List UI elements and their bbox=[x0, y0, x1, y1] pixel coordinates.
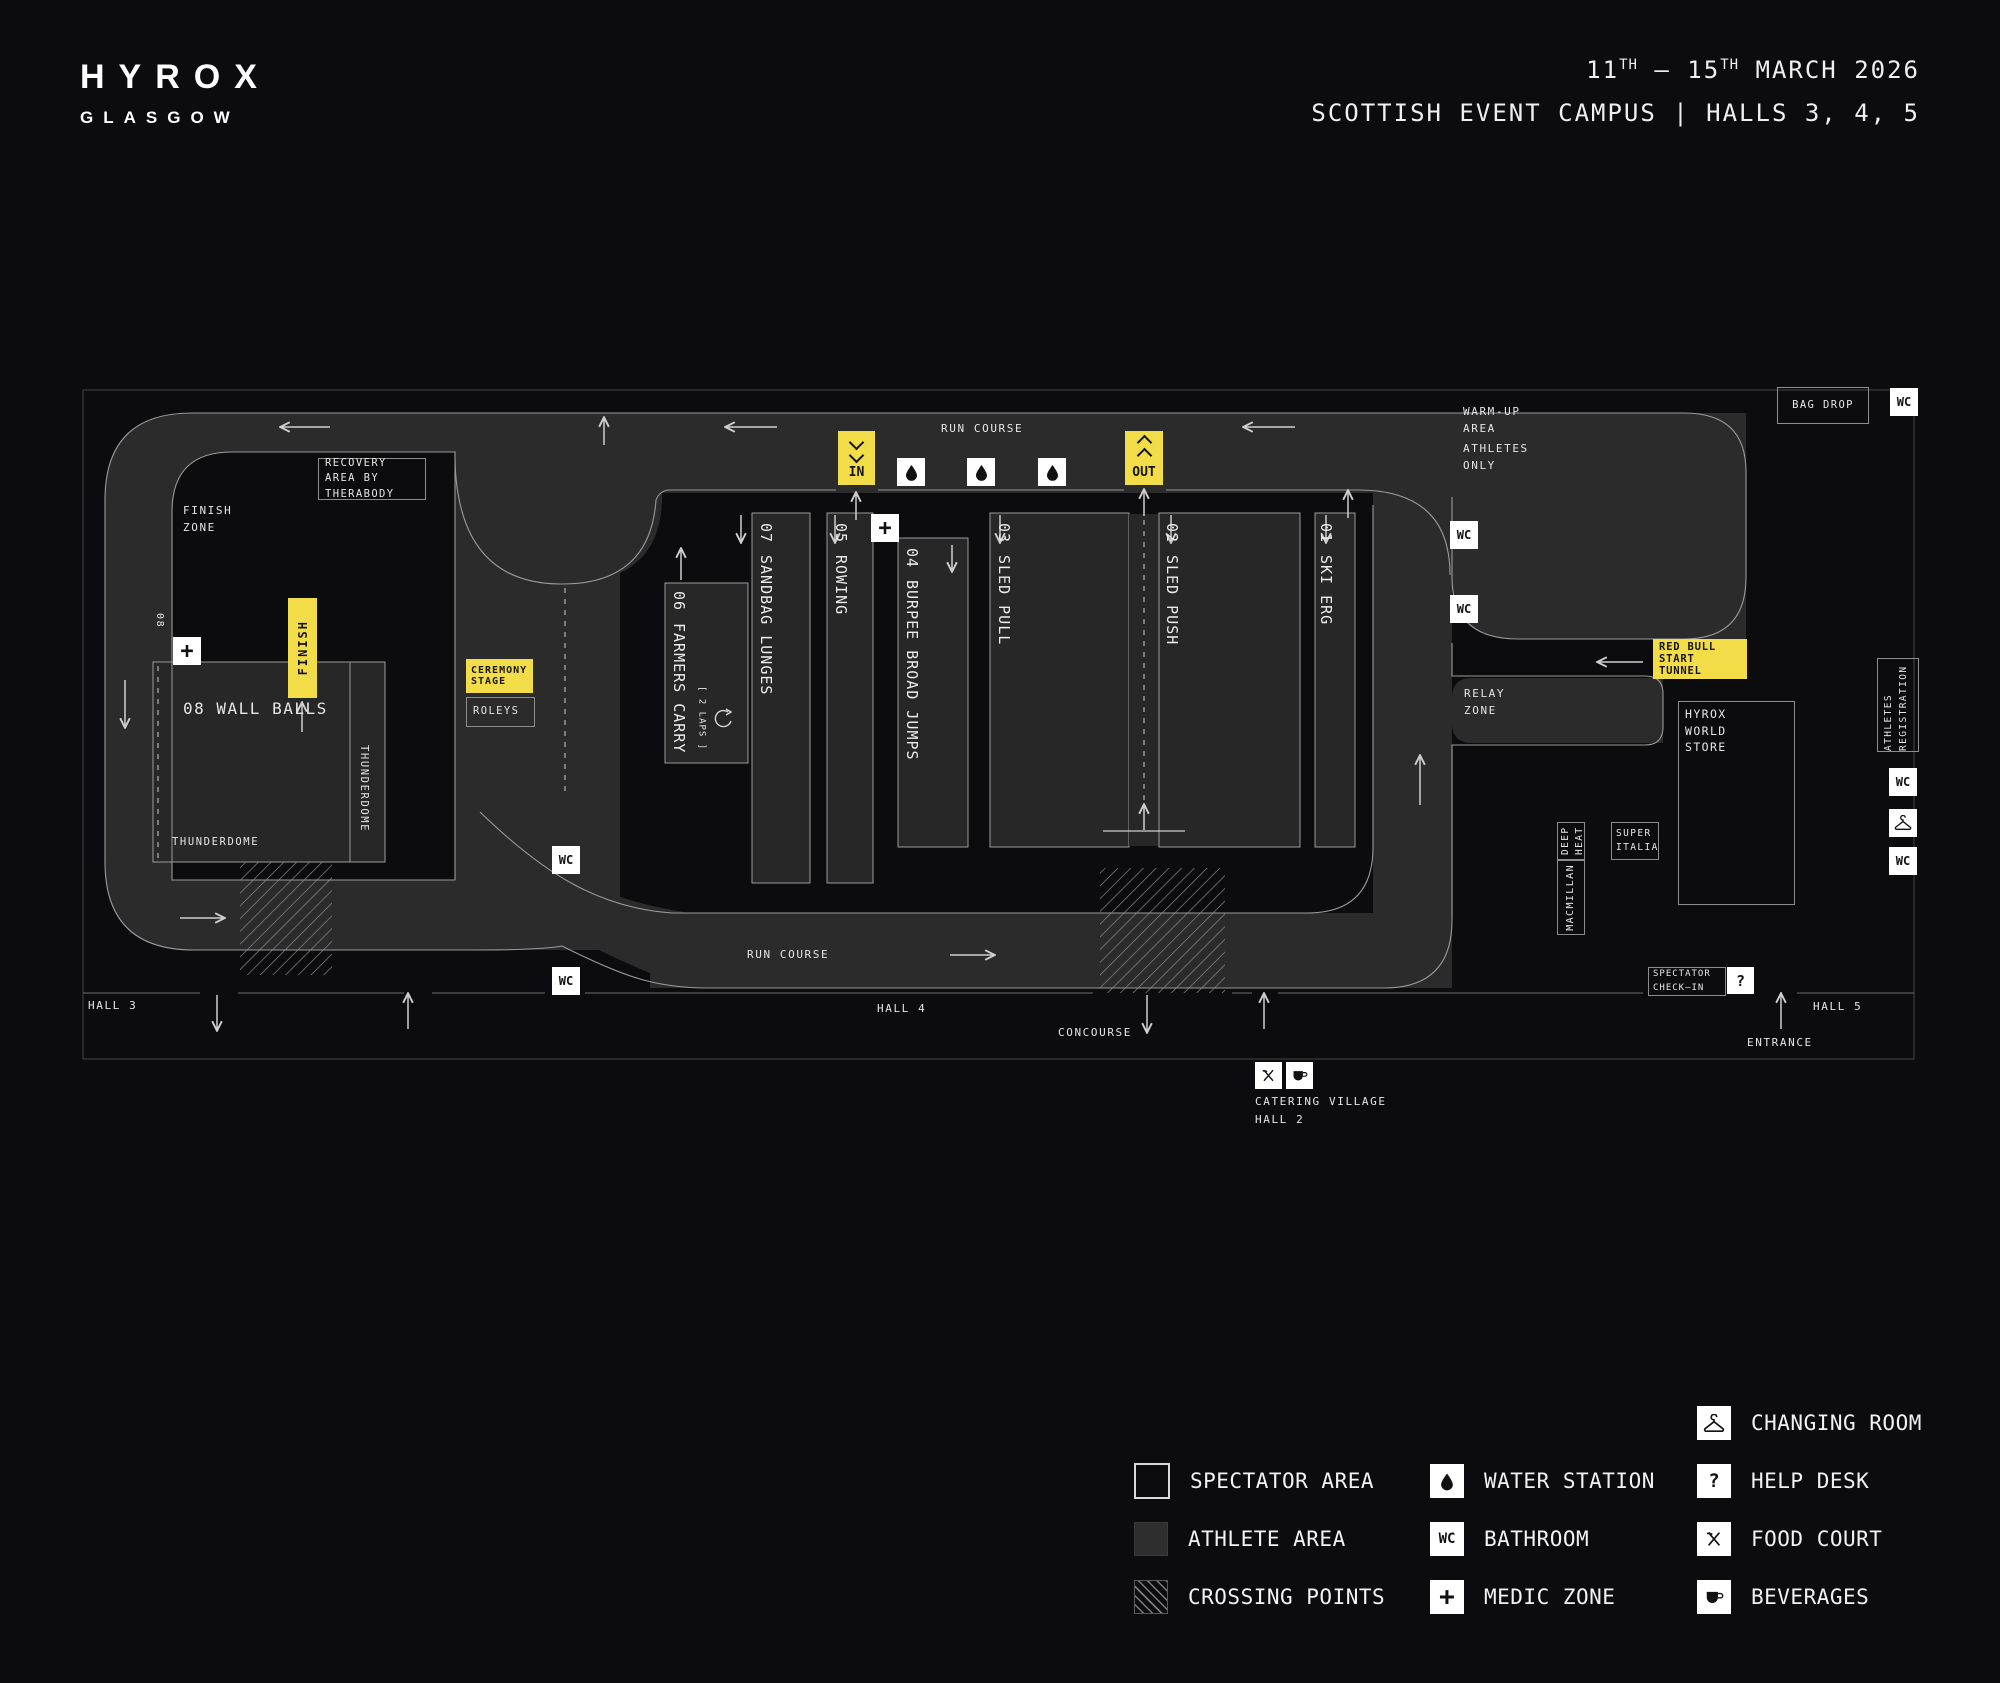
station-label-farmers-carry: 06FARMERS CARRY bbox=[670, 591, 688, 753]
entrance-label: ENTRANCE bbox=[1747, 1035, 1813, 1052]
event-map-page: HYROX GLASGOW 11TH — 15TH MARCH 2026 SCO… bbox=[0, 0, 2000, 1683]
station-label-rowing: 05ROWING bbox=[832, 523, 850, 615]
hyrox-world-store-box: HYROX WORLD STORE bbox=[1678, 701, 1795, 905]
red-bull-start-tunnel-box: RED BULL START TUNNEL bbox=[1653, 639, 1747, 679]
changing-room-icon bbox=[1889, 809, 1917, 837]
thunderdome-label-bottom: THUNDERDOME bbox=[172, 835, 259, 851]
finish-banner: FINISH bbox=[288, 598, 317, 698]
station-label-sled-pull: 03SLED PULL bbox=[995, 523, 1013, 645]
recovery-area-box: RECOVERY AREA BY THERABODY bbox=[318, 458, 426, 500]
bathroom-icon: WC bbox=[1430, 1522, 1464, 1556]
athletes-only-label: ATHLETES ONLY bbox=[1463, 441, 1533, 474]
medic-zone-icon: + bbox=[173, 637, 201, 665]
hall5-label: HALL 5 bbox=[1813, 999, 1862, 1016]
legend-help-desk: ? HELP DESK bbox=[1697, 1464, 1869, 1498]
roleys-box: ROLEYS bbox=[466, 697, 535, 727]
hall3-label: HALL 3 bbox=[88, 998, 137, 1015]
legend-crossing-points: CROSSING POINTS bbox=[1134, 1580, 1385, 1614]
bathroom-icon: WC bbox=[1889, 768, 1917, 796]
crossing-points-swatch bbox=[1134, 1580, 1168, 1614]
chevron-up-icon bbox=[1136, 448, 1152, 464]
legend-spectator-area: SPECTATOR AREA bbox=[1134, 1464, 1374, 1498]
bag-drop-box: BAG DROP bbox=[1777, 387, 1869, 424]
water-station-icon bbox=[897, 458, 925, 486]
bathroom-icon: WC bbox=[552, 967, 580, 995]
spectator-checkin-box: SPECTATOR CHECK—IN bbox=[1648, 967, 1726, 996]
bathroom-icon: WC bbox=[1890, 388, 1918, 416]
station-label-sled-push: 02SLED PUSH bbox=[1163, 523, 1181, 645]
medic-zone-icon: + bbox=[871, 514, 899, 542]
course-gate-out: OUT bbox=[1125, 431, 1163, 485]
water-station-icon bbox=[1430, 1464, 1464, 1498]
finish-zone-label: FINISH ZONE bbox=[183, 503, 245, 536]
bathroom-icon: WC bbox=[1889, 847, 1917, 875]
beverages-icon bbox=[1286, 1062, 1313, 1089]
macmillan-box: MACMILLAN bbox=[1557, 860, 1585, 935]
station-label-burpee-broad-jumps: 04BURPEE BROAD JUMPS bbox=[903, 548, 921, 761]
run-course-label-top: RUN COURSE bbox=[941, 421, 1023, 438]
cup-icon bbox=[1292, 1069, 1308, 1082]
water-drop-icon bbox=[974, 464, 989, 481]
legend-beverages: BEVERAGES bbox=[1697, 1580, 1869, 1614]
food-court-icon bbox=[1255, 1062, 1282, 1089]
station-label-sandbag-lunges: 07SANDBAG LUNGES bbox=[757, 523, 775, 696]
bathroom-icon: WC bbox=[1450, 595, 1478, 623]
deep-heat-box: DEEP HEAT bbox=[1557, 822, 1585, 860]
water-station-icon bbox=[967, 458, 995, 486]
water-station-icon bbox=[1038, 458, 1066, 486]
beverages-icon bbox=[1697, 1580, 1731, 1614]
wall-balls-label: 08 WALL BALLS bbox=[183, 697, 328, 721]
crossing-point-left bbox=[240, 858, 332, 975]
hanger-icon bbox=[1894, 815, 1912, 831]
help-desk-icon: ? bbox=[1697, 1464, 1731, 1498]
legend-food-court: FOOD COURT bbox=[1697, 1522, 1882, 1556]
spectator-area-swatch bbox=[1134, 1463, 1170, 1499]
water-drop-icon bbox=[1045, 464, 1060, 481]
athletes-registration-box: ATHLETES REGISTRATION bbox=[1877, 658, 1919, 752]
changing-room-icon bbox=[1697, 1406, 1731, 1440]
catering-hall-label: HALL 2 bbox=[1255, 1112, 1304, 1129]
water-drop-icon bbox=[904, 464, 919, 481]
legend-water-station: WATER STATION bbox=[1430, 1464, 1655, 1498]
thunderdome-label-side: THUNDERDOME bbox=[355, 745, 371, 832]
fork-knife-icon bbox=[1261, 1068, 1276, 1083]
crossing-point-concourse bbox=[1100, 868, 1225, 993]
warm-up-area-label: WARM-UP AREA bbox=[1463, 404, 1533, 437]
concourse-label: CONCOURSE bbox=[1058, 1025, 1132, 1042]
legend-medic-zone: + MEDIC ZONE bbox=[1430, 1580, 1615, 1614]
bathroom-icon: WC bbox=[1450, 521, 1478, 549]
run-course-label-bottom: RUN COURSE bbox=[747, 947, 829, 964]
medic-zone-icon: + bbox=[1430, 1580, 1464, 1614]
help-desk-icon: ? bbox=[1727, 967, 1754, 994]
station-label-ski-erg: 01SKI ERG bbox=[1317, 523, 1335, 625]
legend-bathroom: WC BATHROOM bbox=[1430, 1522, 1589, 1556]
catering-village-label: CATERING VILLAGE bbox=[1255, 1094, 1387, 1111]
athlete-area-swatch bbox=[1134, 1522, 1168, 1556]
chevron-down-icon bbox=[849, 448, 865, 464]
ceremony-stage-box: CEREMONY STAGE bbox=[466, 659, 533, 693]
super-italia-box: SUPER ITALIA bbox=[1611, 822, 1659, 860]
course-gate-in: IN bbox=[838, 431, 875, 485]
wall-balls-mini-number: 08 bbox=[152, 613, 167, 628]
food-court-icon bbox=[1697, 1522, 1731, 1556]
legend-athlete-area: ATHLETE AREA bbox=[1134, 1522, 1346, 1556]
hall4-label: HALL 4 bbox=[877, 1001, 926, 1018]
bathroom-icon: WC bbox=[552, 846, 580, 874]
farmers-carry-laps-label: [ 2 LAPS ] bbox=[694, 686, 708, 750]
relay-zone-label: RELAY ZONE bbox=[1464, 686, 1514, 719]
legend-changing-room: CHANGING ROOM bbox=[1697, 1406, 1922, 1440]
